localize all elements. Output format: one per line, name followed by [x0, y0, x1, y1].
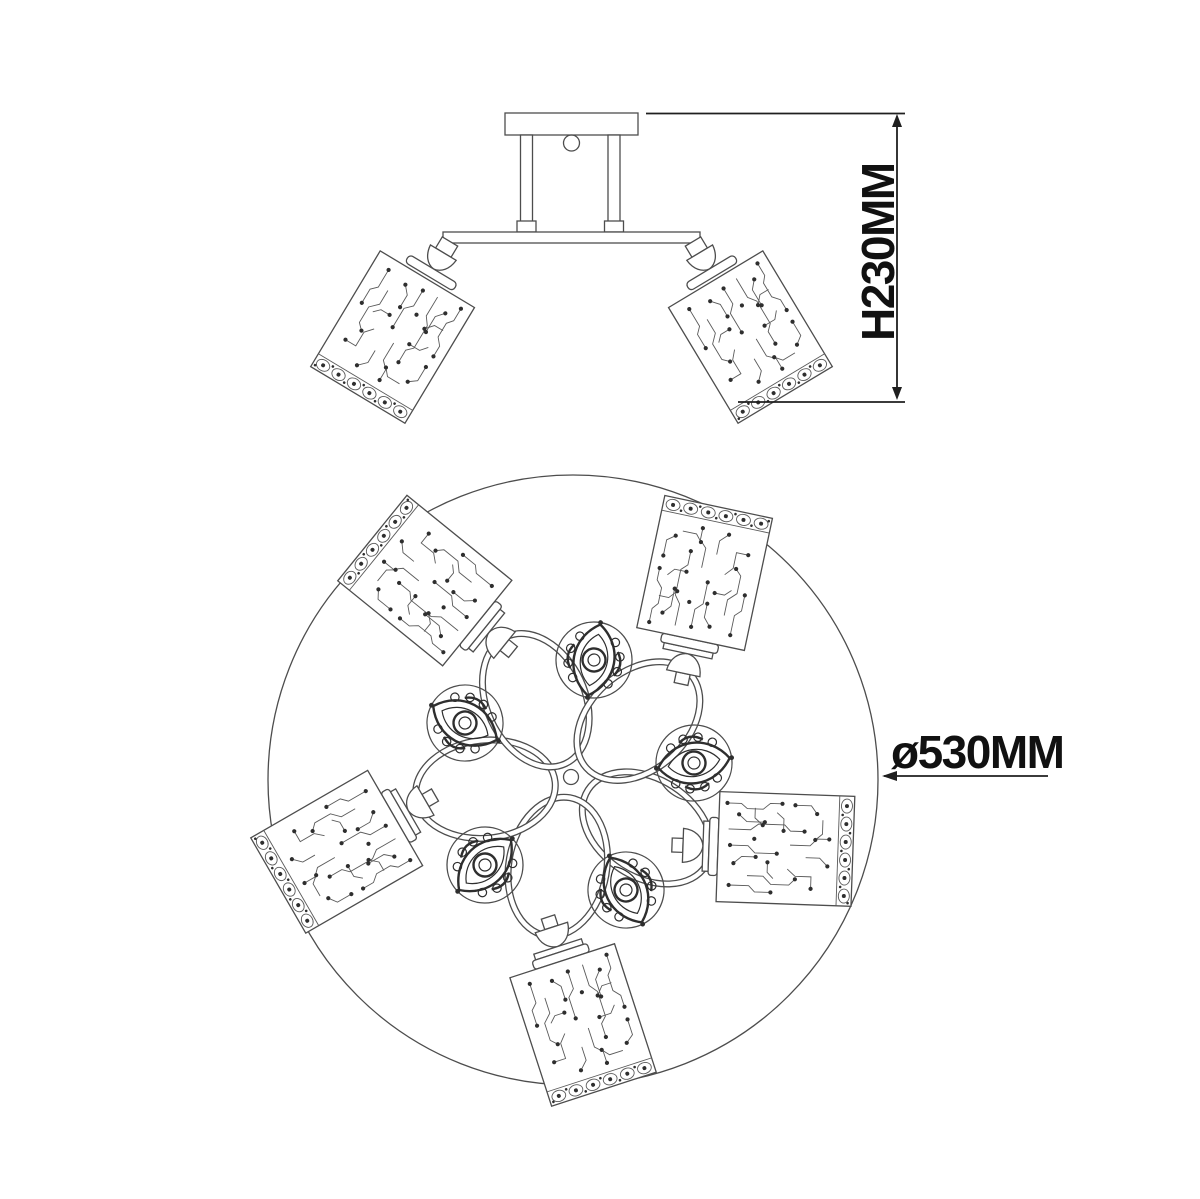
elevation-view — [311, 113, 833, 423]
mounting-rod-right — [608, 135, 620, 222]
center-hub — [564, 770, 579, 785]
lamp-shade-upper-left — [338, 495, 548, 694]
height-dimension-label: H230MM — [852, 163, 904, 341]
diameter-dimension-label: ø530MM — [891, 726, 1063, 778]
mounting-rod-left — [521, 135, 533, 222]
lamp-unit-right — [646, 213, 832, 423]
arrow-up-icon — [892, 114, 902, 127]
screw-knob — [564, 135, 580, 151]
ornament-upper-left — [411, 670, 518, 775]
ceiling-plate — [505, 113, 638, 135]
arm-loop-left — [411, 733, 560, 845]
rod-collar-left — [517, 221, 536, 232]
ornament-top — [550, 614, 639, 707]
lamp-shade-left — [251, 747, 463, 933]
ornament-bottom-right — [574, 837, 678, 943]
lamp-unit-left — [311, 213, 497, 423]
arrow-down-icon — [892, 387, 902, 400]
plan-view — [251, 475, 878, 1106]
support-bar — [443, 232, 700, 243]
rod-collar-right — [605, 221, 624, 232]
drawing-page: H230MM ø530MM — [0, 0, 1200, 1199]
technical-drawing: H230MM ø530MM — [0, 0, 1200, 1199]
diameter-dimension: ø530MM — [882, 726, 1063, 781]
